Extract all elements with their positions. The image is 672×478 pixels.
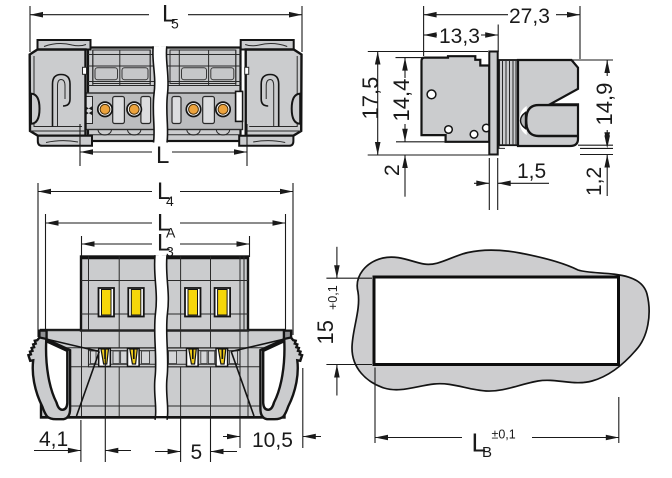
svg-text:B: B xyxy=(482,444,492,461)
svg-text:13,3: 13,3 xyxy=(439,25,480,48)
svg-text:10,5: 10,5 xyxy=(252,429,293,452)
svg-text:+0,1: +0,1 xyxy=(326,285,340,310)
svg-text:2: 2 xyxy=(381,164,404,176)
svg-text:1,2: 1,2 xyxy=(583,167,606,196)
svg-text:27,3: 27,3 xyxy=(509,5,550,28)
svg-text:±0,1: ±0,1 xyxy=(492,428,516,442)
svg-text:4: 4 xyxy=(166,193,174,209)
svg-text:4,1: 4,1 xyxy=(39,428,68,451)
svg-text:5: 5 xyxy=(171,16,179,32)
svg-text:5: 5 xyxy=(191,441,203,464)
svg-text:1,5: 1,5 xyxy=(517,160,546,183)
svg-text:17,5: 17,5 xyxy=(358,77,383,120)
svg-text:14,4: 14,4 xyxy=(389,79,414,122)
svg-text:L: L xyxy=(156,142,169,169)
svg-text:15: 15 xyxy=(313,320,338,344)
svg-text:14,9: 14,9 xyxy=(592,83,617,126)
